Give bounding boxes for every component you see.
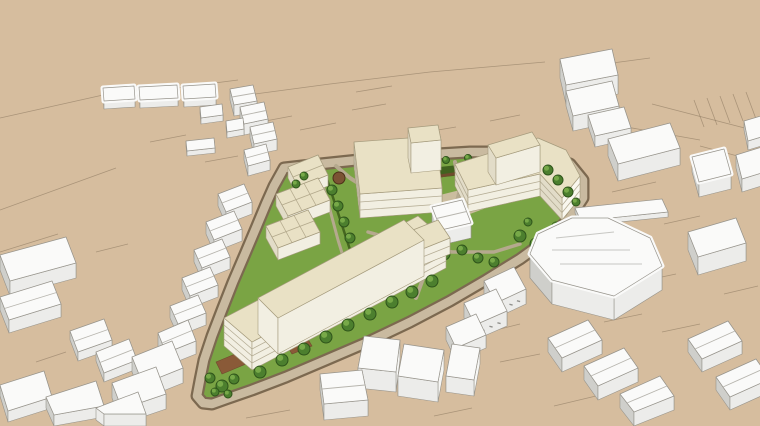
tree — [229, 374, 239, 384]
tree — [364, 308, 376, 320]
context-building — [398, 344, 444, 402]
context-building — [186, 138, 215, 156]
context-building — [320, 370, 368, 420]
tree — [563, 187, 573, 197]
tree — [386, 296, 398, 308]
tree — [320, 331, 332, 343]
context-building — [103, 86, 135, 109]
tree — [543, 165, 553, 175]
context-building — [139, 85, 178, 108]
tree — [276, 354, 288, 366]
tree — [524, 218, 532, 226]
tree — [457, 245, 467, 255]
tree — [211, 388, 219, 396]
tree — [254, 366, 266, 378]
proposed-building — [408, 125, 441, 173]
tree — [333, 201, 343, 211]
tree — [298, 343, 310, 355]
tree — [489, 257, 499, 267]
tree — [224, 390, 232, 398]
tree — [406, 286, 418, 298]
site-plan-3d-render — [0, 0, 760, 426]
tree — [572, 198, 580, 206]
context-building — [200, 104, 223, 124]
tree — [514, 230, 526, 242]
context-building — [692, 149, 731, 197]
tree — [342, 319, 354, 331]
context-building — [244, 144, 270, 176]
tree — [300, 172, 308, 180]
context-building — [183, 84, 216, 107]
tree — [345, 233, 355, 243]
tree — [327, 185, 337, 195]
tree — [473, 253, 483, 263]
context-building — [446, 344, 480, 396]
playground — [333, 172, 345, 184]
render-viewport — [0, 0, 760, 426]
context-building — [226, 118, 244, 138]
tree — [292, 180, 300, 188]
tree — [553, 175, 563, 185]
tree — [443, 157, 450, 164]
tree — [339, 217, 349, 227]
tree — [205, 373, 215, 383]
tree — [426, 275, 438, 287]
